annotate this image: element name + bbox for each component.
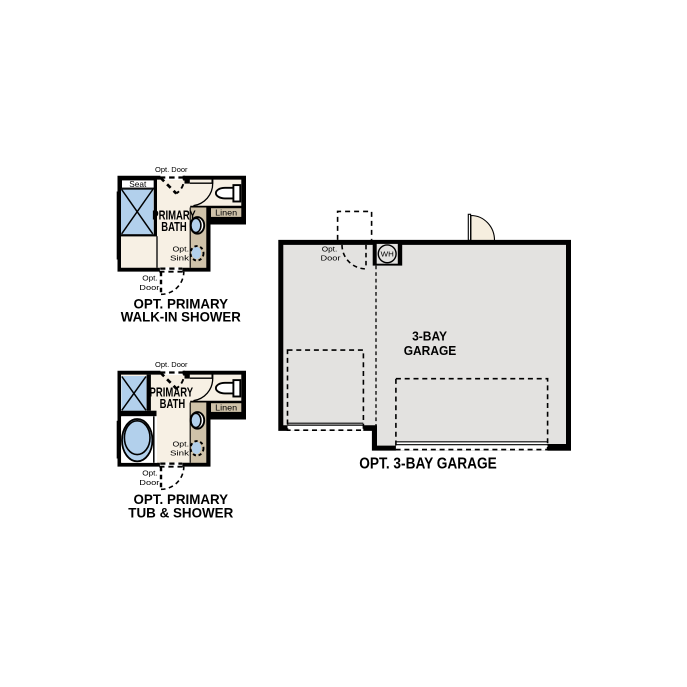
- svg-text:Sink: Sink: [170, 254, 189, 263]
- svg-text:Door: Door: [139, 478, 160, 487]
- svg-text:Opt.: Opt.: [173, 244, 190, 253]
- svg-text:BATH: BATH: [160, 396, 186, 411]
- svg-text:Opt.: Opt.: [142, 274, 158, 283]
- svg-text:Seat: Seat: [129, 180, 147, 189]
- svg-text:Opt. Door: Opt. Door: [155, 360, 188, 369]
- svg-text:Opt. Door: Opt. Door: [155, 165, 188, 174]
- svg-text:GARAGE: GARAGE: [404, 343, 457, 358]
- svg-text:Opt.: Opt.: [142, 469, 158, 478]
- svg-text:TUB & SHOWER: TUB & SHOWER: [128, 504, 233, 520]
- svg-text:Door: Door: [321, 253, 342, 262]
- svg-text:BATH: BATH: [161, 219, 187, 234]
- svg-text:3-BAY: 3-BAY: [412, 328, 447, 343]
- svg-text:WH: WH: [381, 252, 394, 259]
- svg-text:Linen: Linen: [215, 404, 237, 413]
- svg-text:WALK-IN SHOWER: WALK-IN SHOWER: [121, 308, 241, 324]
- svg-text:Opt.: Opt.: [322, 245, 338, 254]
- svg-text:Sink: Sink: [170, 449, 189, 458]
- svg-text:Linen: Linen: [215, 209, 237, 218]
- svg-text:Door: Door: [139, 283, 160, 292]
- svg-text:OPT. 3-BAY GARAGE: OPT. 3-BAY GARAGE: [359, 455, 497, 472]
- svg-text:Opt.: Opt.: [173, 439, 190, 448]
